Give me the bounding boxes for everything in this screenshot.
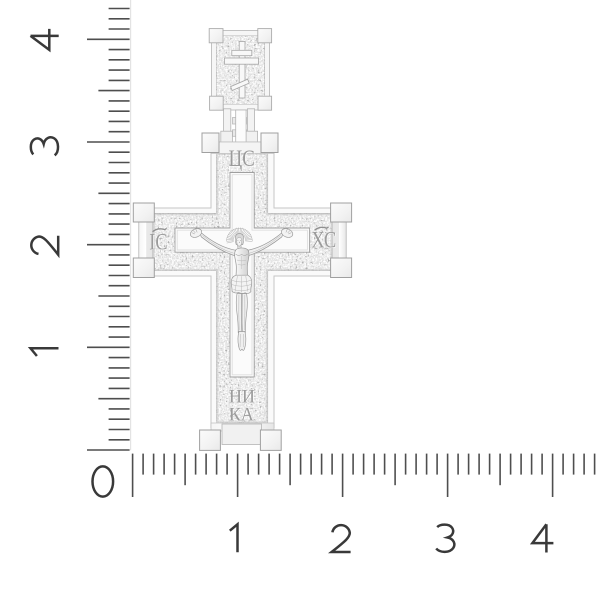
svg-text:ЦС: ЦС <box>229 145 255 171</box>
svg-text:КА: КА <box>229 404 254 426</box>
svg-text:ІС: ІС <box>149 228 167 255</box>
